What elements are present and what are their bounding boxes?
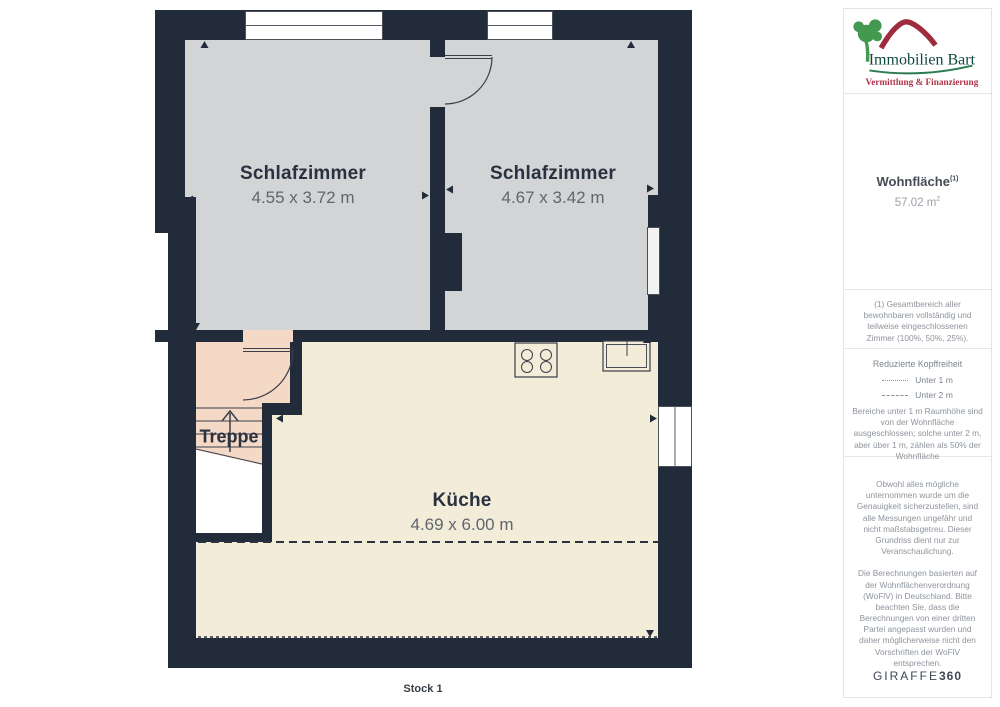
room-name: Schlafzimmer	[240, 163, 366, 185]
kitchen-floor-left	[272, 415, 302, 542]
wall-right-upper	[658, 10, 692, 342]
room-dims: 4.67 x 3.42 m	[490, 188, 616, 208]
hall-door-opening	[243, 330, 293, 342]
stair-void	[196, 465, 262, 533]
living-area-label: Wohnfläche(1)	[877, 174, 959, 189]
agency-logo: Immobilien Bart Vermittlung & Finanzieru…	[844, 9, 991, 94]
giraffe360-name: GIRAFFE	[873, 669, 939, 683]
room-dims: 4.69 x 6.00 m	[410, 515, 513, 535]
wall-bedroom1-bottom-left	[155, 330, 243, 342]
legend-label: Unter 1 m	[915, 375, 953, 385]
legend-label: Unter 2 m	[915, 390, 953, 400]
wall-left-lower	[168, 233, 196, 638]
wall-void-right	[262, 415, 272, 542]
wall-bottom	[168, 638, 692, 668]
wall-left-step	[155, 197, 196, 233]
legend-under-1m: Unter 1 m	[852, 375, 983, 385]
dotted-line-sample	[882, 380, 908, 381]
wall-mid-stub	[430, 40, 445, 57]
bedroom2-floor-notch	[648, 40, 658, 195]
window-top-right	[487, 11, 553, 40]
wall-top	[155, 10, 692, 40]
wall-chimney	[445, 233, 462, 291]
footnote-text: (1) Gesamtbereich aller bewohnbaren voll…	[854, 299, 981, 344]
hall-floor	[196, 342, 290, 408]
window-bedroom2-right	[647, 227, 660, 295]
wall-void-bottom	[196, 533, 272, 542]
room-label-bedroom1: Schlafzimmer 4.55 x 3.72 m	[240, 163, 366, 208]
agency-name: Immobilien Bart	[868, 52, 975, 69]
floorplan: Schlafzimmer 4.55 x 3.72 m Schlafzimmer …	[0, 0, 840, 707]
living-area-label-text: Wohnfläche	[877, 174, 950, 189]
wall-mid	[430, 107, 445, 330]
wall-right-lower	[658, 342, 692, 668]
floorplan-page: Schlafzimmer 4.55 x 3.72 m Schlafzimmer …	[0, 0, 1000, 707]
headroom-body: Bereiche unter 1 m Raumhöhe sind von der…	[852, 406, 983, 462]
room-label-kitchen: Küche 4.69 x 6.00 m	[410, 490, 513, 535]
room-label-stairs: Treppe	[199, 427, 258, 448]
wall-bedroom1-bottom-right	[293, 330, 445, 342]
living-area-section: Wohnfläche(1) 57.02 m2	[844, 94, 991, 290]
wall-left-upper	[155, 10, 185, 197]
room-label-bedroom2: Schlafzimmer 4.67 x 3.42 m	[490, 163, 616, 208]
giraffe360-number: 360	[939, 669, 962, 683]
living-area-footnote-ref: (1)	[950, 176, 959, 183]
legend-under-2m: Unter 2 m	[852, 390, 983, 400]
info-sidebar: Immobilien Bart Vermittlung & Finanzieru…	[843, 8, 992, 698]
disclaimer-accuracy: Obwohl alles mögliche unternommen wurde …	[853, 479, 982, 557]
wall-bedroom2-bottom	[430, 330, 658, 342]
floor-caption: Stock 1	[403, 683, 442, 695]
agency-tagline: Vermittlung & Finanzierung	[865, 77, 978, 87]
kitchen-floor-lower	[196, 542, 658, 638]
roof-icon	[881, 22, 935, 48]
disclaimer-section: Obwohl alles mögliche unternommen wurde …	[844, 457, 991, 697]
window-kitchen-right	[658, 406, 692, 467]
room-dims: 4.55 x 3.72 m	[240, 188, 366, 208]
living-area-value-text: 57.02 m	[895, 197, 937, 209]
agency-logo-graphic: Immobilien Bart Vermittlung & Finanzieru…	[850, 9, 986, 93]
giraffe360-logo: GIRAFFE360	[853, 669, 982, 687]
headroom-section: Reduzierte Kopffreiheit Unter 1 m Unter …	[844, 349, 991, 457]
window-top-left	[245, 11, 383, 40]
living-area-value: 57.02 m2	[895, 196, 940, 209]
living-area-value-sup: 2	[936, 196, 940, 203]
footnote-section: (1) Gesamtbereich aller bewohnbaren voll…	[844, 290, 991, 349]
room-name: Küche	[410, 490, 513, 512]
dashed-line-sample	[882, 395, 908, 396]
disclaimer-regulation: Die Berechnungen basierten auf der Wohnf…	[853, 568, 982, 669]
wall-hall-bottom	[262, 403, 302, 415]
room-name: Schlafzimmer	[490, 163, 616, 185]
headroom-title: Reduzierte Kopffreiheit	[852, 359, 983, 369]
